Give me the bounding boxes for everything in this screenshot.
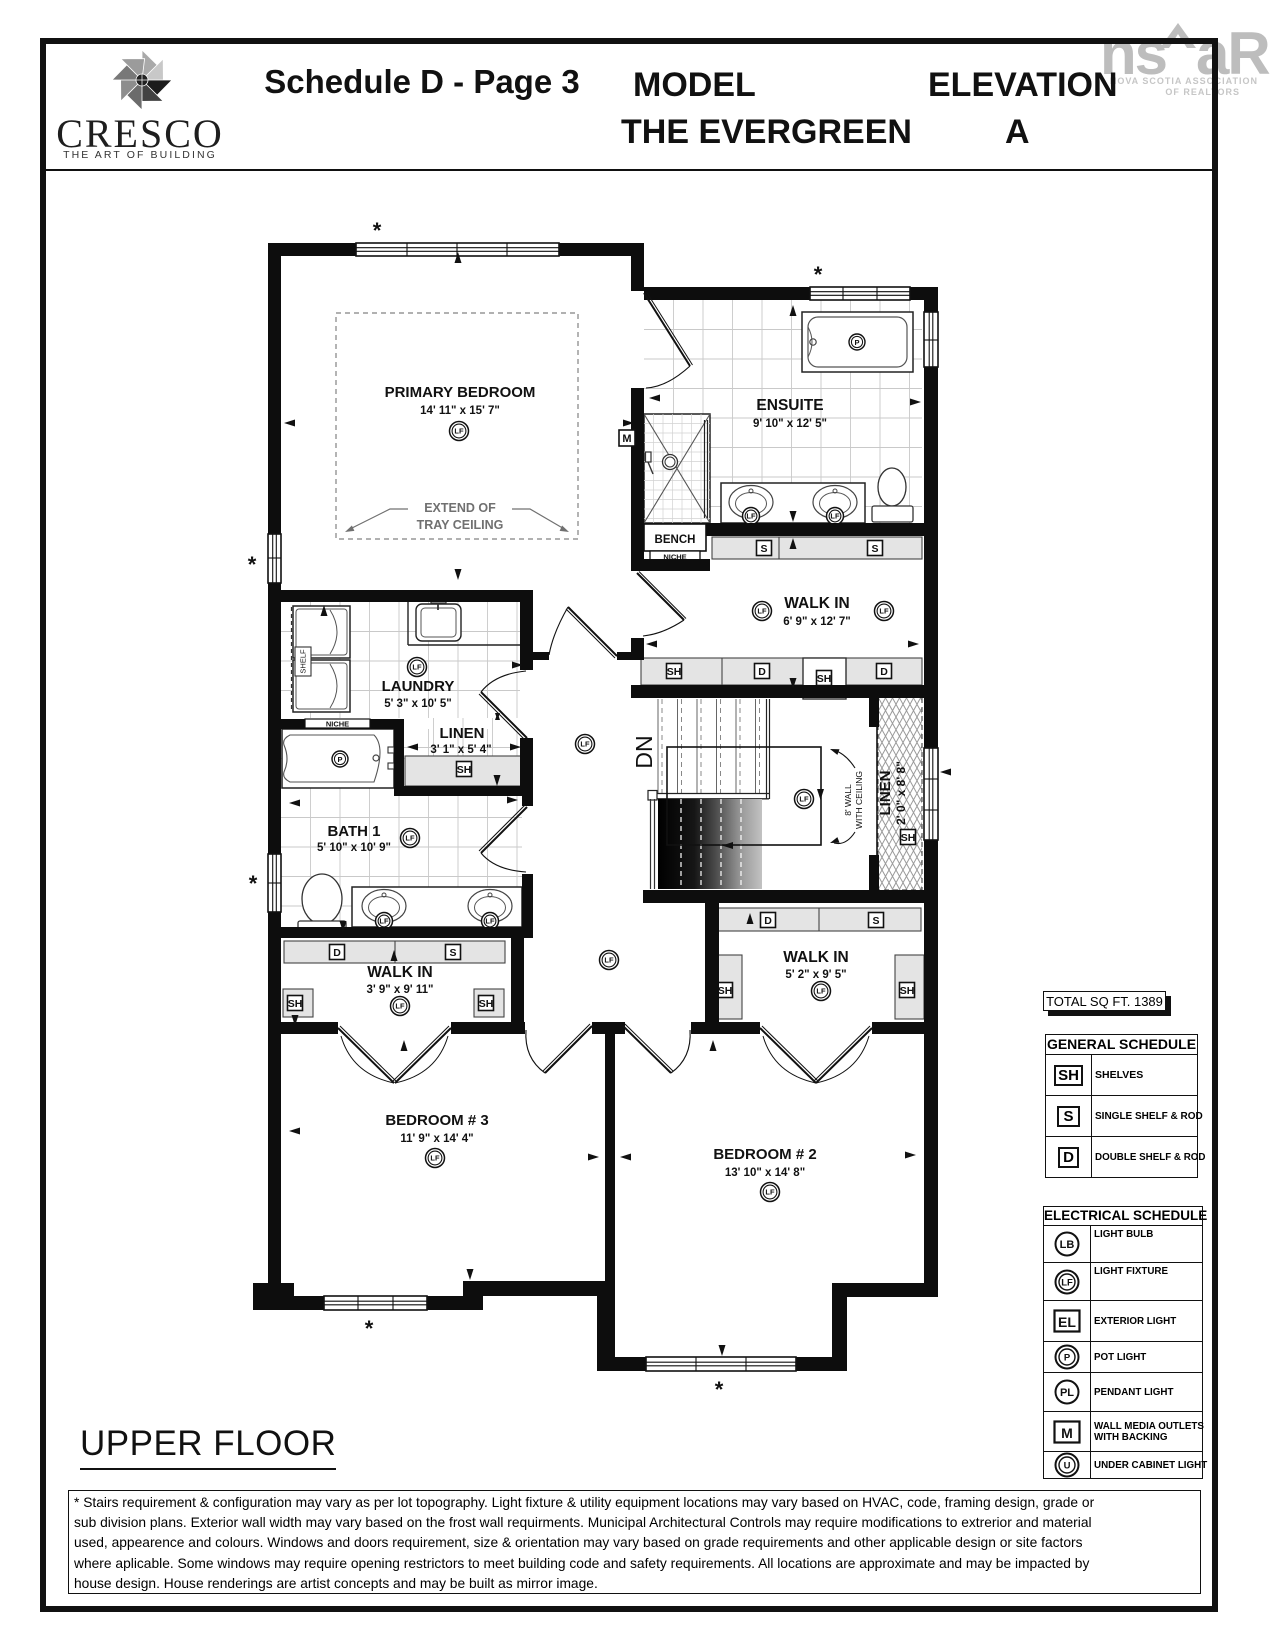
svg-text:13' 10" x 14' 8": 13' 10" x 14' 8": [725, 1167, 805, 1179]
svg-text:*: *: [373, 218, 382, 243]
svg-text:D: D: [880, 666, 888, 678]
svg-text:LF: LF: [757, 607, 767, 616]
svg-text:M: M: [622, 433, 631, 445]
svg-text:11' 9" x 14' 4": 11' 9" x 14' 4": [400, 1133, 473, 1145]
svg-text:6' 9" x 12' 7": 6' 9" x 12' 7": [783, 616, 851, 628]
svg-text:S: S: [760, 543, 767, 555]
svg-text:5' 3" x 10' 5": 5' 3" x 10' 5": [384, 698, 452, 710]
svg-text:SHELF: SHELF: [299, 649, 308, 674]
svg-text:PL: PL: [1060, 1387, 1074, 1399]
svg-text:S: S: [871, 543, 878, 555]
svg-text:LF: LF: [412, 663, 422, 672]
svg-text:LF: LF: [454, 427, 464, 436]
svg-text:SH: SH: [288, 998, 303, 1010]
svg-text:LF: LF: [405, 834, 415, 843]
svg-text:SH: SH: [817, 673, 832, 685]
svg-text:*: *: [715, 1377, 724, 1402]
svg-text:5' 10" x 10' 9": 5' 10" x 10' 9": [317, 842, 391, 854]
svg-text:*: *: [248, 552, 257, 577]
svg-text:EL: EL: [1058, 1314, 1076, 1330]
svg-text:LINEN: LINEN: [440, 725, 485, 742]
svg-text:EXTEND OF: EXTEND OF: [424, 501, 496, 515]
svg-text:SH: SH: [901, 832, 916, 844]
svg-text:WITH CEILING: WITH CEILING: [854, 771, 864, 829]
svg-text:BATH 1: BATH 1: [327, 823, 380, 840]
svg-text:LF: LF: [379, 917, 389, 926]
svg-text:8' WALL: 8' WALL: [843, 784, 853, 816]
svg-text:WALK IN: WALK IN: [783, 949, 848, 966]
svg-text:14' 11" x 15' 7": 14' 11" x 15' 7": [420, 405, 500, 417]
svg-text:LF: LF: [879, 607, 889, 616]
svg-text:ENSUITE: ENSUITE: [756, 397, 823, 414]
svg-text:LF: LF: [580, 740, 590, 749]
svg-text:5' 2" x 9' 5": 5' 2" x 9' 5": [785, 969, 846, 981]
svg-text:U: U: [1064, 1461, 1071, 1472]
svg-text:BEDROOM # 3: BEDROOM # 3: [385, 1112, 488, 1129]
svg-text:SH: SH: [479, 998, 494, 1010]
svg-text:SH: SH: [457, 764, 472, 776]
svg-text:SH: SH: [718, 985, 733, 997]
svg-text:DN: DN: [631, 735, 657, 768]
svg-text:LF: LF: [604, 956, 614, 965]
svg-text:LAUNDRY: LAUNDRY: [382, 678, 455, 695]
svg-text:S: S: [872, 915, 879, 927]
svg-text:TRAY CEILING: TRAY CEILING: [417, 518, 504, 532]
svg-text:D: D: [758, 666, 766, 678]
svg-text:D: D: [764, 915, 772, 927]
svg-text:LF: LF: [816, 987, 826, 996]
svg-text:2' 0" x 8' 8": 2' 0" x 8' 8": [894, 761, 908, 825]
svg-text:LF: LF: [799, 795, 809, 804]
svg-text:S: S: [449, 947, 456, 959]
svg-text:LINEN: LINEN: [877, 771, 894, 816]
svg-text:*: *: [365, 1316, 374, 1341]
svg-text:LF: LF: [395, 1002, 405, 1011]
svg-text:SH: SH: [900, 985, 915, 997]
svg-text:D: D: [333, 947, 341, 959]
svg-text:PRIMARY BEDROOM: PRIMARY BEDROOM: [385, 384, 536, 401]
svg-text:LB: LB: [1060, 1239, 1075, 1251]
svg-text:3' 1" x 5' 4": 3' 1" x 5' 4": [430, 744, 491, 756]
svg-text:3' 9" x 9' 11": 3' 9" x 9' 11": [367, 984, 434, 996]
svg-text:WALK IN: WALK IN: [784, 595, 849, 612]
svg-text:LF: LF: [430, 1154, 440, 1163]
svg-text:LF: LF: [1061, 1277, 1073, 1288]
svg-text:LF: LF: [485, 917, 495, 926]
svg-text:NICHE: NICHE: [326, 720, 349, 729]
svg-text:P: P: [854, 338, 859, 347]
svg-text:BEDROOM # 2: BEDROOM # 2: [713, 1146, 816, 1163]
svg-text:LF: LF: [765, 1188, 775, 1197]
svg-text:P: P: [1064, 1353, 1071, 1364]
svg-text:BENCH: BENCH: [655, 534, 696, 546]
svg-text:*: *: [249, 871, 258, 896]
svg-text:*: *: [814, 262, 823, 287]
svg-text:LF: LF: [830, 512, 840, 521]
svg-text:LF: LF: [746, 512, 756, 521]
svg-text:M: M: [1061, 1425, 1073, 1441]
svg-text:P: P: [337, 755, 342, 764]
svg-text:WALK IN: WALK IN: [367, 964, 432, 981]
svg-text:9' 10" x 12' 5": 9' 10" x 12' 5": [753, 418, 827, 430]
svg-text:SH: SH: [667, 666, 682, 678]
